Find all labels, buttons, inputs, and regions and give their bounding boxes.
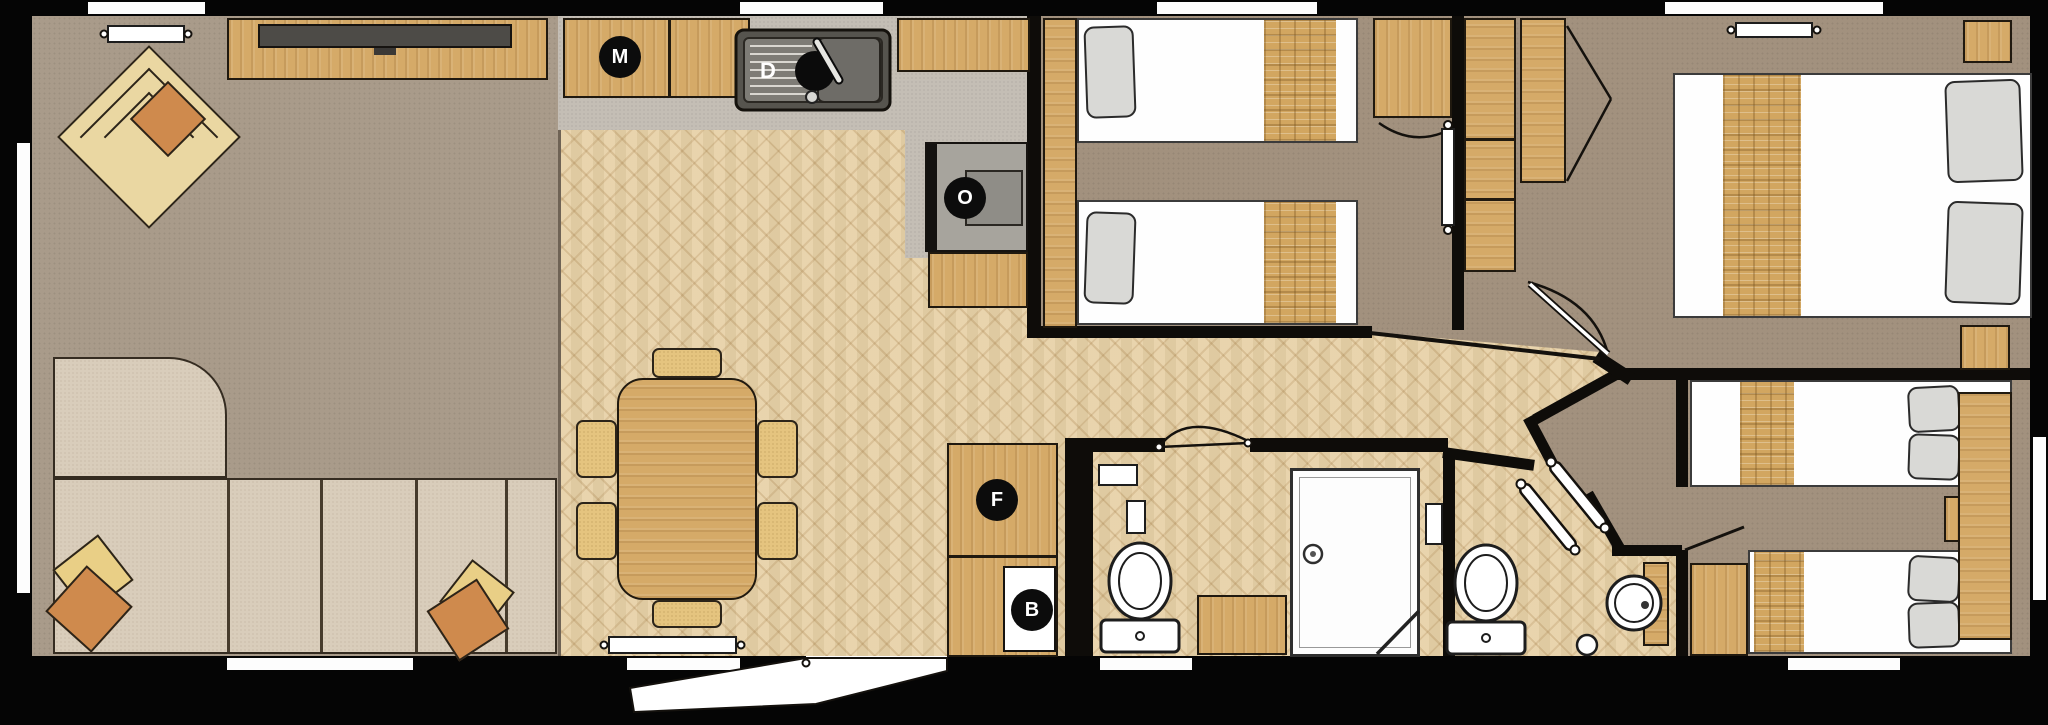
shower-glass-door: [1377, 611, 1419, 654]
door-hinge-dot: [1601, 524, 1610, 533]
plug-knob: [806, 91, 818, 103]
shower-room-door-leaf: [1159, 443, 1248, 447]
dishwasher-letter: D: [760, 58, 776, 84]
radiator-dot: [601, 642, 608, 649]
door-hinge-dot: [1444, 121, 1452, 129]
shower-drain-dot: [1310, 551, 1316, 557]
hall-boundary-line: [1370, 333, 1600, 359]
radiator-dot: [185, 31, 192, 38]
toilet-shower-room: [1101, 543, 1179, 652]
door-hinge-dot: [1571, 546, 1580, 555]
fridge-letter: F: [991, 489, 1003, 512]
hall-door-leaf: [1526, 490, 1570, 544]
boiler-label-disc: B: [1011, 589, 1053, 631]
oven-label-disc: O: [944, 177, 986, 219]
door-hinge-dot: [1517, 480, 1526, 489]
radiator-dot: [738, 642, 745, 649]
ensuite-door-leaf: [1556, 468, 1600, 522]
floorplan-canvas: M O F B D: [0, 0, 2048, 725]
boiler-letter: B: [1025, 599, 1039, 622]
bedroom1-door-swing: [1379, 123, 1442, 137]
microwave-letter: M: [612, 46, 629, 69]
pedestal: [1577, 635, 1597, 655]
door-hinge-dot: [1156, 444, 1163, 451]
wardrobe-door-lines: [1567, 26, 1611, 181]
flush-button: [1482, 634, 1490, 642]
basin-tap: [1641, 601, 1649, 609]
door-hinge-dot: [1444, 226, 1452, 234]
radiator-dot: [1814, 27, 1821, 34]
bedroom2-door-swing: [1685, 527, 1744, 550]
oven-letter: O: [957, 187, 973, 210]
microwave-label-disc: M: [599, 36, 641, 78]
master-door-leaf: [1530, 284, 1608, 354]
ensuite-basin: [1607, 576, 1661, 630]
radiator-dot: [1728, 27, 1735, 34]
door-hinge-dot: [1547, 458, 1556, 467]
entrance-door-leaf: [630, 658, 947, 712]
door-hinge-dot: [1245, 440, 1252, 447]
flush-button: [1136, 632, 1144, 640]
fridge-label-disc: F: [976, 479, 1018, 521]
radiator-dot: [101, 31, 108, 38]
toilet-ensuite: [1447, 545, 1525, 654]
door-hinge-dot: [803, 660, 810, 667]
